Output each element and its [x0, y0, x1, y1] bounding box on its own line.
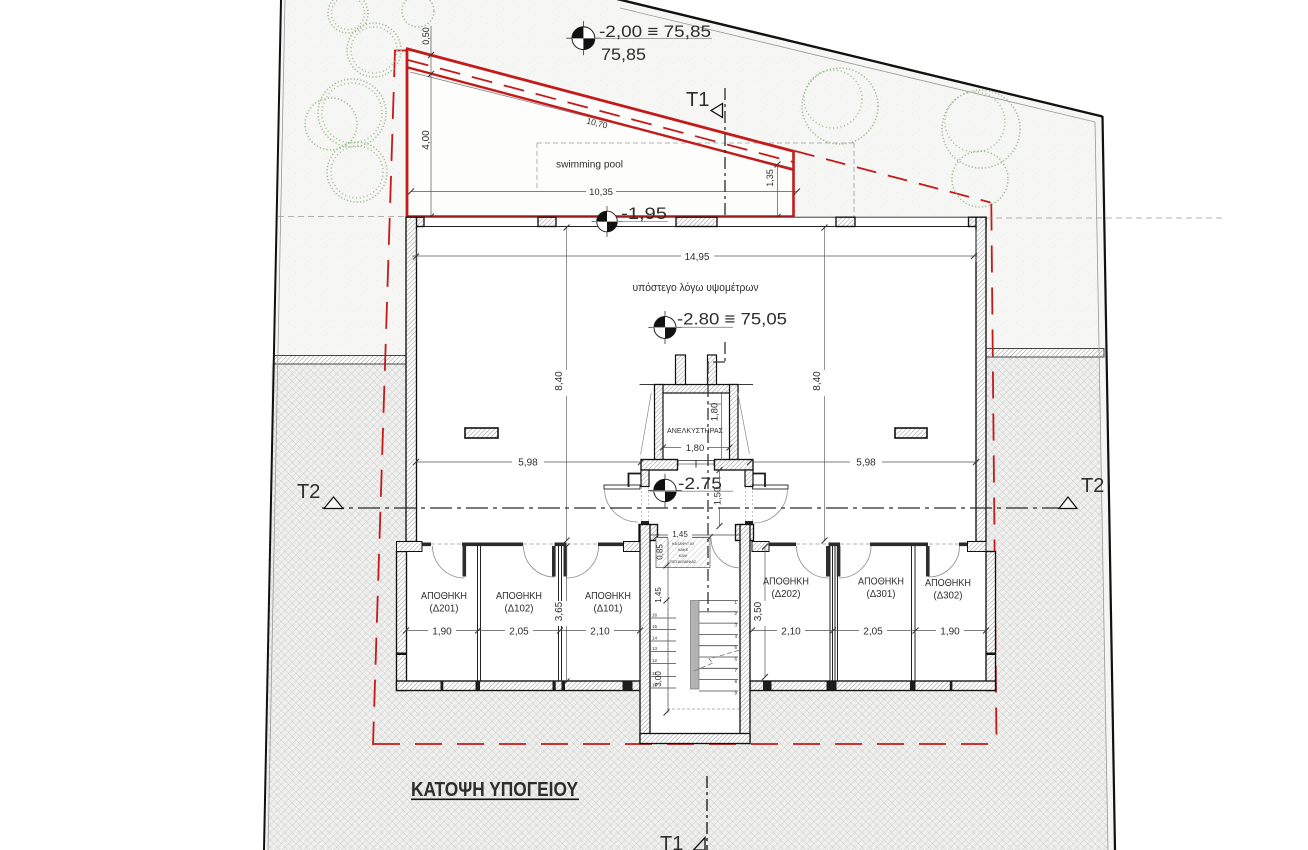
svg-text:8,40: 8,40: [554, 371, 565, 391]
svg-text:2,10: 2,10: [590, 627, 610, 638]
svg-text:(Δ201): (Δ201): [430, 604, 459, 615]
svg-text:1,90: 1,90: [432, 627, 452, 638]
svg-text:ΚΑΨ: ΚΑΨ: [679, 553, 688, 558]
svg-text:1,80: 1,80: [710, 403, 721, 422]
svg-text:3: 3: [735, 623, 738, 628]
svg-text:14: 14: [652, 636, 658, 641]
svg-text:T2: T2: [1081, 475, 1104, 497]
svg-text:0,50: 0,50: [421, 27, 431, 45]
svg-text:ΑΠΟΘΗΚΗ: ΑΠΟΘΗΚΗ: [421, 591, 467, 602]
svg-text:14,95: 14,95: [684, 252, 709, 263]
svg-text:75,85: 75,85: [601, 45, 646, 64]
svg-text:ΑΝΕΛΚΥΣΤΗΡΑΣ: ΑΝΕΛΚΥΣΤΗΡΑΣ: [667, 426, 723, 435]
svg-text:5,98: 5,98: [518, 458, 538, 469]
svg-text:(Δ301): (Δ301): [867, 589, 896, 600]
svg-text:ΚΑΤΑΦΥΓΙΟ: ΚΑΤΑΦΥΓΙΟ: [672, 541, 694, 546]
svg-text:-2.80 ≡ 75,05: -2.80 ≡ 75,05: [677, 310, 787, 329]
svg-text:4: 4: [735, 634, 738, 639]
svg-text:8,40: 8,40: [812, 371, 823, 391]
svg-text:10,35: 10,35: [589, 187, 613, 198]
svg-text:3,65: 3,65: [554, 601, 565, 621]
svg-text:1,45: 1,45: [654, 587, 663, 603]
svg-text:12: 12: [652, 658, 658, 663]
svg-text:1,80: 1,80: [686, 443, 705, 454]
svg-text:ΑΠΟΘΗΚΗ: ΑΠΟΘΗΚΗ: [925, 578, 971, 589]
svg-text:1,90: 1,90: [940, 627, 960, 638]
svg-text:6: 6: [735, 657, 738, 662]
svg-text:ΑΠΟΘΗΚΗ: ΑΠΟΘΗΚΗ: [858, 577, 904, 588]
svg-text:ΠΕΣΑΙΘΑΝΙΑΣ: ΠΕΣΑΙΘΑΝΙΑΣ: [670, 559, 697, 564]
svg-text:(Δ202): (Δ202): [772, 589, 801, 600]
svg-text:13: 13: [652, 646, 658, 651]
svg-text:(Δ101): (Δ101): [594, 604, 623, 615]
svg-text:-1,95: -1,95: [621, 204, 667, 223]
svg-text:ΑΠΟΘΗΚΗ: ΑΠΟΘΗΚΗ: [496, 591, 542, 602]
svg-text:(Δ102): (Δ102): [505, 604, 534, 615]
svg-text:ΛΑΚΚ: ΛΑΚΚ: [678, 547, 689, 552]
svg-text:1: 1: [735, 600, 738, 605]
svg-text:1,35: 1,35: [765, 169, 775, 187]
svg-text:1,50: 1,50: [713, 487, 724, 506]
svg-text:ΚΑΤΟΨΗ ΥΠΟΓΕΙΟΥ: ΚΑΤΟΨΗ ΥΠΟΓΕΙΟΥ: [411, 779, 579, 801]
svg-text:-2,00 ≡ 75,85: -2,00 ≡ 75,85: [599, 22, 711, 41]
svg-text:8: 8: [735, 679, 738, 684]
svg-text:4,00: 4,00: [421, 130, 432, 150]
svg-text:1,45: 1,45: [672, 530, 688, 539]
svg-text:5: 5: [735, 645, 738, 650]
svg-text:swimming pool: swimming pool: [556, 160, 623, 171]
svg-text:5,98: 5,98: [856, 458, 876, 469]
svg-text:2,05: 2,05: [509, 627, 529, 638]
svg-text:(Δ302): (Δ302): [934, 591, 963, 602]
svg-text:0,85: 0,85: [656, 544, 665, 560]
svg-text:υπόστεγο λόγω υψομέτρων: υπόστεγο λόγω υψομέτρων: [633, 282, 759, 294]
svg-text:2,05: 2,05: [863, 627, 883, 638]
svg-text:15: 15: [652, 624, 658, 629]
svg-text:ΑΠΟΘΗΚΗ: ΑΠΟΘΗΚΗ: [763, 577, 809, 588]
svg-text:T2: T2: [297, 481, 320, 503]
svg-text:2,10: 2,10: [781, 627, 801, 638]
svg-text:2: 2: [735, 611, 738, 616]
svg-text:ΑΠΟΘΗΚΗ: ΑΠΟΘΗΚΗ: [585, 591, 631, 602]
svg-text:7: 7: [735, 668, 738, 673]
svg-text:9: 9: [735, 691, 738, 696]
svg-text:3,00: 3,00: [654, 671, 663, 687]
svg-text:16: 16: [652, 613, 658, 618]
svg-text:3,50: 3,50: [753, 601, 764, 621]
svg-text:T1: T1: [660, 833, 683, 850]
svg-text:T1: T1: [686, 89, 709, 111]
